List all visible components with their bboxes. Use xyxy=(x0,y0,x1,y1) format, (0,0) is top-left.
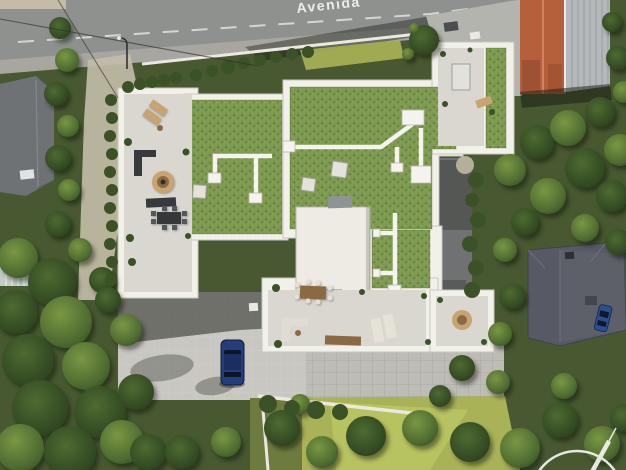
bbq-bench xyxy=(146,197,176,208)
gravel-circle xyxy=(456,156,474,174)
utility-box xyxy=(249,303,258,311)
green-roof-east-lower xyxy=(372,230,430,288)
chimney xyxy=(565,252,574,260)
wood-bench xyxy=(325,335,361,345)
stair-skylight xyxy=(452,64,470,90)
house-southeast xyxy=(528,243,626,346)
rooftop-terrace-southeast xyxy=(436,296,488,346)
green-roof-northwest xyxy=(190,100,282,234)
side-table xyxy=(157,125,163,131)
lamp-head xyxy=(117,36,122,41)
vent-unit xyxy=(328,196,352,209)
fire-pit-lounge xyxy=(152,171,174,193)
dormer xyxy=(585,296,597,305)
far-curb-strip xyxy=(0,0,66,9)
parked-car xyxy=(219,340,245,388)
roof-window xyxy=(20,169,35,179)
aerial-site-plan: Avenida xyxy=(0,0,626,470)
rooftop-terrace-west xyxy=(124,94,192,292)
metal-roof xyxy=(566,0,610,92)
warehouse-northeast xyxy=(520,0,612,108)
yard-box xyxy=(470,31,481,39)
car-roof xyxy=(224,354,241,370)
aerial-render-viewport: Avenida xyxy=(0,0,626,470)
